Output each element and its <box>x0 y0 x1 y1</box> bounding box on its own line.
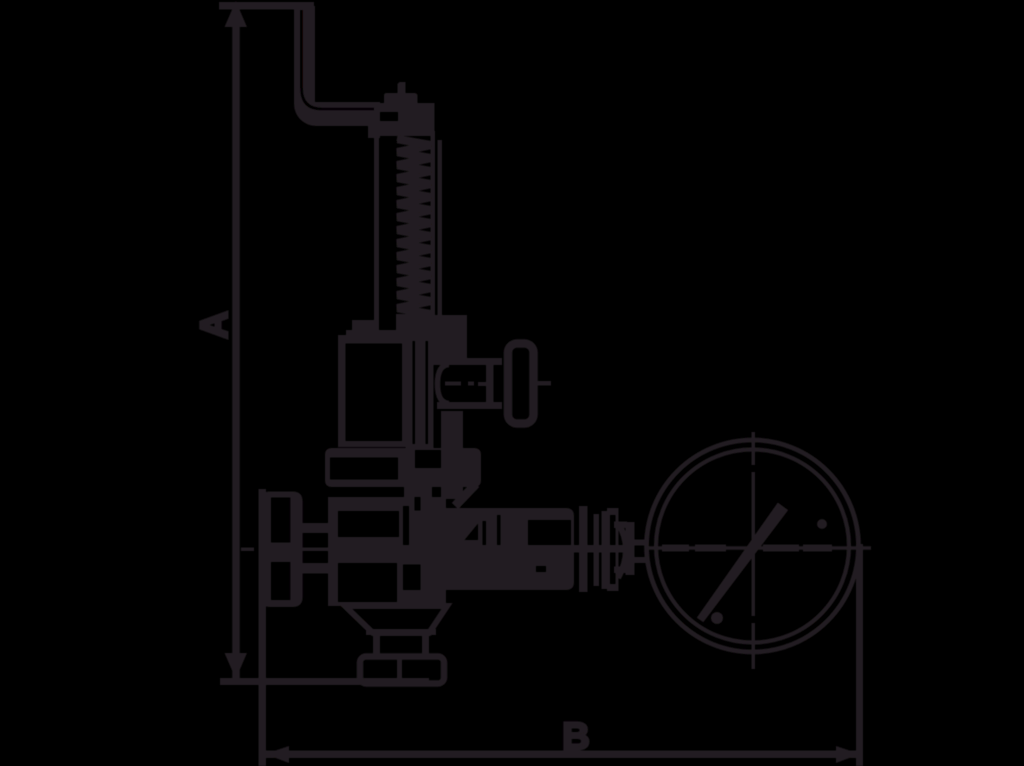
svg-text:A: A <box>194 311 236 338</box>
svg-text:B: B <box>562 716 589 758</box>
